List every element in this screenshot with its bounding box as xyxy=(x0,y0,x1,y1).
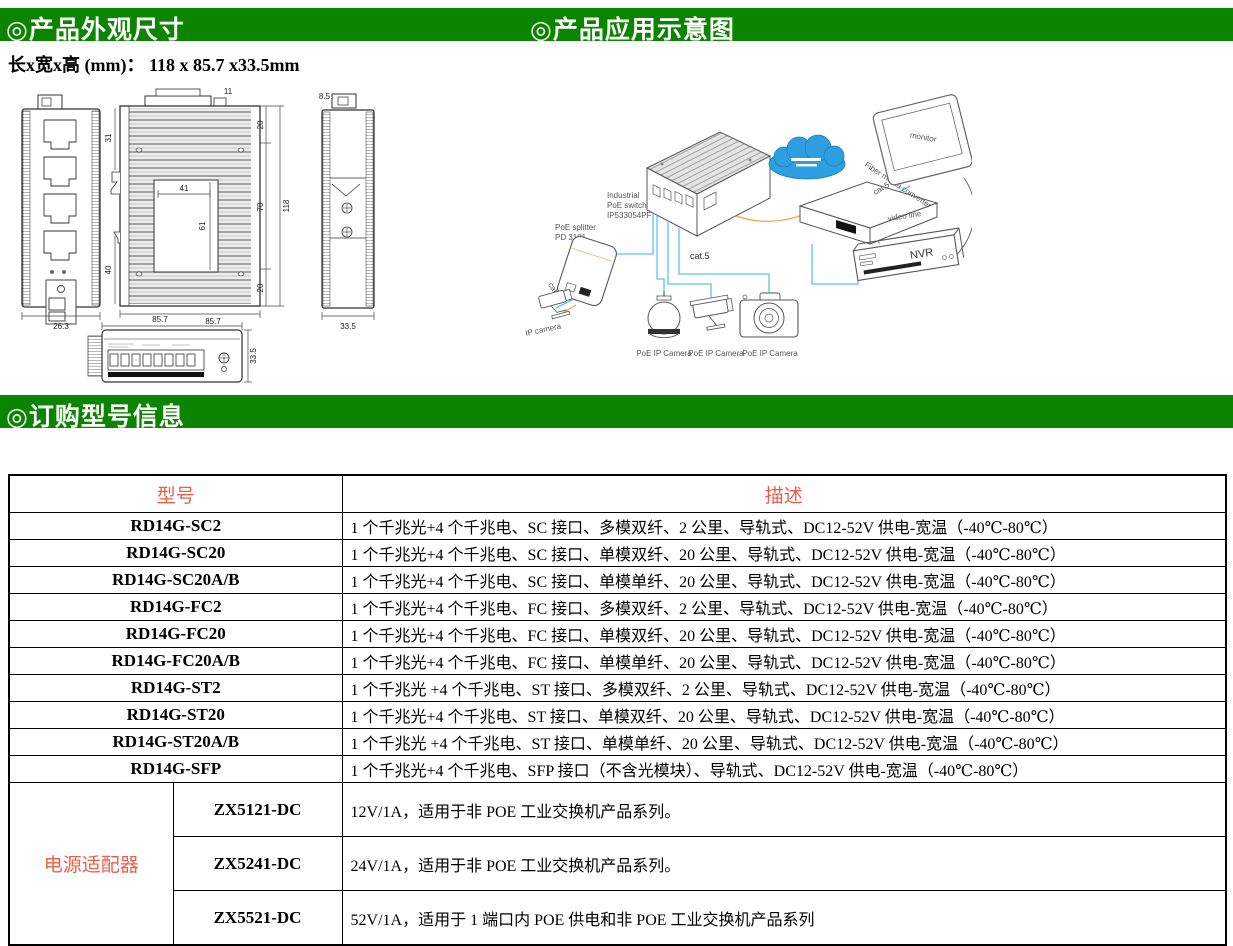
dslr-camera xyxy=(740,293,798,337)
dim-rear-width: 85.7 xyxy=(205,317,221,326)
terminal-block xyxy=(108,350,204,377)
desc-cell: 1 个千兆光+4 个千兆电、FC 接口、单模单纤、20 公里、导轨式、DC12-… xyxy=(342,648,1226,675)
din-clip xyxy=(111,172,120,194)
bullet-camera xyxy=(690,295,736,333)
dim-label-width: 41 xyxy=(180,184,189,193)
dim-bottom-depth: 33.5 xyxy=(249,348,258,364)
table-row: RD14G-SC20 1 个千兆光+4 个千兆电、SC 接口、单模双纤、20 公… xyxy=(9,540,1226,567)
desc-cell: 1 个千兆光+4 个千兆电、SC 接口、单模双纤、20 公里、导轨式、DC12-… xyxy=(342,540,1226,567)
model-cell: RD14G-SC2 xyxy=(9,513,342,540)
table-row: RD14G-FC20 1 个千兆光+4 个千兆电、FC 接口、单模双纤、20 公… xyxy=(9,621,1226,648)
poe-camera-label-2: PoE IP Camera xyxy=(688,349,744,358)
model-cell: ZX5521-DC xyxy=(173,891,342,946)
dim-front-width: 26.3 xyxy=(53,322,69,331)
ordering-table: 型号 描述 RD14G-SC2 1 个千兆光+4 个千兆电、SC 接口、多模双纤… xyxy=(8,474,1227,946)
dim-total-height: 118 xyxy=(282,199,291,212)
table-header-row: 型号 描述 xyxy=(9,475,1226,513)
poe-camera-label-1: PoE IP Camera xyxy=(636,349,692,358)
dim-side-width: 33.5 xyxy=(340,322,356,331)
section-bar-top: ◎产品外观尺寸 ◎产品应用示意图 xyxy=(0,8,1233,41)
model-cell: RD14G-ST20A/B xyxy=(9,729,342,756)
desc-cell: 1 个千兆光+4 个千兆电、SC 接口、单模单纤、20 公里、导轨式、DC12-… xyxy=(342,567,1226,594)
desc-cell: 1 个千兆光+4 个千兆电、SFP 接口（不含光模块）、导轨式、DC12-52V… xyxy=(342,756,1226,783)
desc-cell: 1 个千兆光+4 个千兆电、FC 接口、多模双纤、2 公里、导轨式、DC12-5… xyxy=(342,594,1226,621)
table-row: RD14G-SC2 1 个千兆光+4 个千兆电、SC 接口、多模双纤、2 公里、… xyxy=(9,513,1226,540)
desc-cell: 1 个千兆光+4 个千兆电、FC 接口、单模双纤、20 公里、导轨式、DC12-… xyxy=(342,621,1226,648)
col-header-model: 型号 xyxy=(9,475,342,513)
table-row: RD14G-SC20A/B 1 个千兆光+4 个千兆电、SC 接口、单模单纤、2… xyxy=(9,567,1226,594)
model-cell: RD14G-ST20 xyxy=(9,702,342,729)
sc-fiber-port xyxy=(46,280,76,324)
table-row-adapter: ZX5521-DC 52V/1A，适用于 1 端口内 POE 供电和非 POE … xyxy=(9,891,1226,946)
section-bar-ordering: ◎订购型号信息 xyxy=(0,395,1233,428)
section-title-ordering: ◎订购型号信息 xyxy=(6,397,185,433)
desc-cell: 1 个千兆光 +4 个千兆电、ST 接口、多模双纤、2 公里、导轨式、DC12-… xyxy=(342,675,1226,702)
side-view: 8.5 33.5 xyxy=(319,92,374,331)
model-cell: RD14G-SFP xyxy=(9,756,342,783)
table-row: RD14G-ST2 1 个千兆光 +4 个千兆电、ST 接口、多模双纤、2 公里… xyxy=(9,675,1226,702)
ip-camera xyxy=(538,288,575,320)
led-dot xyxy=(50,270,54,274)
section-title-application: ◎产品应用示意图 xyxy=(530,10,735,46)
dim-side-top: 8.5 xyxy=(319,92,331,101)
adapter-group-label: 电源适配器 xyxy=(9,783,173,946)
dim-left-lower: 40 xyxy=(104,265,113,274)
table-row-adapter: ZX5241-DC 24V/1A，适用于非 POE 工业交换机产品系列。 xyxy=(9,837,1226,891)
model-cell: RD14G-FC20 xyxy=(9,621,342,648)
switch-label-line1: Industrial xyxy=(607,191,640,200)
desc-cell: 12V/1A，适用于非 POE 工业交换机产品系列。 xyxy=(342,783,1226,837)
section-title-appearance: ◎产品外观尺寸 xyxy=(6,10,185,46)
col-header-desc: 描述 xyxy=(342,475,1226,513)
rear-view: 11 41 61 31 40 20 70 20 118 85.7 xyxy=(104,87,291,326)
model-cell: ZX5241-DC xyxy=(173,837,342,891)
model-cell: RD14G-SC20 xyxy=(9,540,342,567)
led-dot xyxy=(62,270,66,274)
dimension-drawings: 26.3 11 41 61 31 40 20 70 2 xyxy=(8,86,400,392)
front-view: 26.3 xyxy=(22,95,100,331)
dim-bottom-width: 85.7 xyxy=(152,315,168,324)
switch-label-line2: PoE switch xyxy=(607,201,647,210)
table-row: RD14G-FC20A/B 1 个千兆光+4 个千兆电、FC 接口、单模单纤、2… xyxy=(9,648,1226,675)
application-diagram: Industrial PoE switch IP533054PF Fiber m… xyxy=(512,86,972,386)
monitor: monitor xyxy=(872,93,972,186)
desc-cell: 1 个千兆光+4 个千兆电、SC 接口、多模双纤、2 公里、导轨式、DC12-5… xyxy=(342,513,1226,540)
ip-camera-label: IP camera xyxy=(525,321,563,337)
table-row: RD14G-ST20 1 个千兆光+4 个千兆电、ST 接口、单模双纤、20 公… xyxy=(9,702,1226,729)
table-row: RD14G-SFP 1 个千兆光+4 个千兆电、SFP 接口（不含光模块）、导轨… xyxy=(9,756,1226,783)
dim-left-upper: 31 xyxy=(104,133,113,142)
bottom-view: 85.7 33.5 xyxy=(88,315,258,382)
desc-cell: 1 个千兆光+4 个千兆电、ST 接口、单模双纤、20 公里、导轨式、DC12-… xyxy=(342,702,1226,729)
switch-label-line3: IP533054PF xyxy=(607,211,652,220)
dim-rear-tab: 11 xyxy=(224,87,233,96)
wan-cloud-icon xyxy=(769,135,845,179)
model-cell: RD14G-FC2 xyxy=(9,594,342,621)
page: { "colors": { "header_green": "#0b8500",… xyxy=(0,0,1233,898)
product-dimensions-text: 长x宽x高 (mm)： 118 x 85.7 x33.5mm xyxy=(8,51,299,77)
model-cell: RD14G-FC20A/B xyxy=(9,648,342,675)
table-row-adapter: 电源适配器 ZX5121-DC 12V/1A，适用于非 POE 工业交换机产品系… xyxy=(9,783,1226,837)
table-row: RD14G-ST20A/B 1 个千兆光 +4 个千兆电、ST 接口、单模单纤、… xyxy=(9,729,1226,756)
model-cell: RD14G-ST2 xyxy=(9,675,342,702)
splitter-label-line1: PoE splitter xyxy=(555,223,596,232)
desc-cell: 24V/1A，适用于非 POE 工业交换机产品系列。 xyxy=(342,837,1226,891)
table-row: RD14G-FC2 1 个千兆光+4 个千兆电、FC 接口、多模双纤、2 公里、… xyxy=(9,594,1226,621)
dim-right-lower: 20 xyxy=(256,283,265,292)
desc-cell: 52V/1A，适用于 1 端口内 POE 供电和非 POE 工业交换机产品系列 xyxy=(342,891,1226,946)
model-cell: ZX5121-DC xyxy=(173,783,342,837)
dome-camera xyxy=(648,291,680,338)
desc-cell: 1 个千兆光 +4 个千兆电、ST 接口、单模单纤、20 公里、导轨式、DC12… xyxy=(342,729,1226,756)
dim-label-height: 61 xyxy=(198,221,207,230)
dim-right-upper: 20 xyxy=(256,120,265,129)
dim-right-mid: 70 xyxy=(256,202,265,211)
model-cell: RD14G-SC20A/B xyxy=(9,567,342,594)
poe-camera-label-3: PoE IP Camera xyxy=(742,349,798,358)
cat5-label-center: cat.5 xyxy=(690,251,710,261)
